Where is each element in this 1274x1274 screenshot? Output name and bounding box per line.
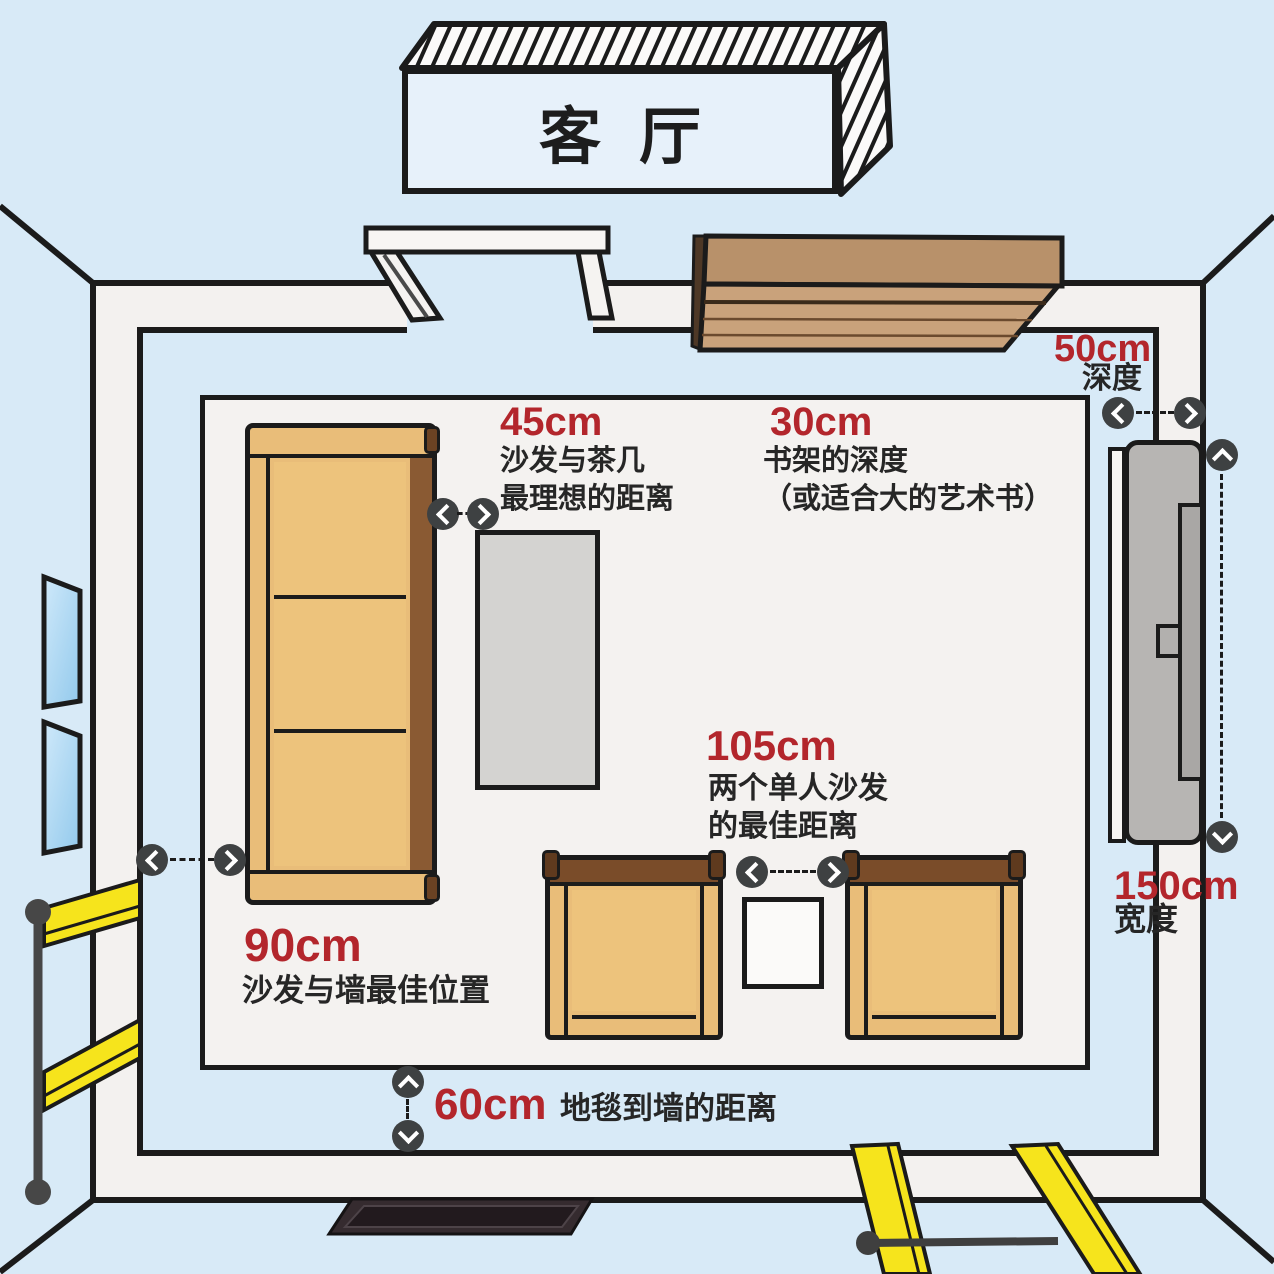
dim-30-desc-line1: 书架的深度 [763, 442, 1053, 480]
dim-45-value: 45cm [500, 400, 602, 445]
chevron-up [1211, 447, 1232, 468]
bookshelf-shelf-line [703, 319, 1032, 320]
perspective-line-bottom-right [1203, 1200, 1274, 1262]
dim-30-desc: 书架的深度 （或适合大的艺术书） [763, 442, 1053, 518]
doormat [329, 1199, 592, 1234]
sofa-cushion-divider [274, 729, 406, 733]
chevron-right [216, 849, 237, 870]
chevron-left [144, 849, 165, 870]
chair-backrest [550, 860, 718, 886]
chair-armrest-left [550, 886, 568, 1035]
dimension-dash [170, 858, 214, 861]
ladder-left [25, 880, 140, 1205]
dim-105-desc-line1: 两个单人沙发 [708, 770, 888, 808]
sofa-backrest [250, 458, 270, 870]
chair-front-edge [872, 1015, 996, 1035]
dim-50-desc: 深度 [1082, 360, 1142, 398]
banner: 客厅 [402, 68, 838, 194]
arrow-up-icon [392, 1066, 424, 1098]
dim-150-desc-line1: 宽度 [1114, 900, 1178, 938]
dim-30-desc-line2: （或适合大的艺术书） [763, 480, 1053, 518]
arrow-down-icon [392, 1120, 424, 1152]
dim-60-value: 60cm [434, 1080, 547, 1130]
chair-armrest-right [1000, 886, 1018, 1035]
chair-backrest [850, 860, 1018, 886]
chevron-right [819, 861, 840, 882]
dim-105-desc-line2: 的最佳距离 [708, 808, 888, 846]
chevron-down [397, 1122, 418, 1143]
dimension-dash [406, 1099, 409, 1119]
dimension-dash [1136, 411, 1174, 414]
perspective-line-top-left [0, 206, 93, 283]
arrow-left-icon [427, 498, 459, 530]
chevron-left [1110, 402, 1131, 423]
sofa [245, 423, 437, 905]
perspective-line-bottom-left [0, 1200, 93, 1272]
dim-90-desc-line1: 沙发与墙最佳位置 [242, 972, 490, 1010]
living-room-diagram: 客厅 [0, 0, 1274, 1274]
armchair-right [845, 855, 1023, 1040]
dimension-dash [1220, 474, 1223, 818]
sofa-armrest-top [250, 428, 432, 458]
dim-105-desc: 两个单人沙发 的最佳距离 [708, 770, 888, 846]
arrow-right-icon [817, 856, 849, 888]
window-lower [44, 722, 80, 853]
chair-seat [872, 890, 996, 1011]
arrow-left-icon [136, 844, 168, 876]
arrow-down-icon [1206, 821, 1238, 853]
chevron-left [744, 861, 765, 882]
sofa-arm-post [424, 426, 440, 454]
dim-45-desc-line2: 最理想的距离 [500, 480, 674, 518]
sofa-cushion-divider [274, 595, 406, 599]
arrow-up-icon [1206, 439, 1238, 471]
bookshelf-front [700, 284, 1058, 350]
dim-45-desc: 沙发与茶几 最理想的距离 [500, 442, 674, 518]
chevron-right [469, 503, 490, 524]
chevron-up [397, 1074, 418, 1095]
sofa-armrest-bottom [250, 870, 432, 900]
ladder-rail-cap [25, 899, 51, 925]
ladder-bottom-right [852, 1144, 1140, 1274]
sofa-arm-post [424, 874, 440, 902]
bookshelf-shelf-line [704, 302, 1046, 303]
arrow-right-icon [467, 498, 499, 530]
chair-back-post [1008, 850, 1026, 880]
dim-50-desc-line1: 深度 [1082, 360, 1142, 398]
dimension-dash [770, 870, 816, 873]
perspective-line-top-right [1203, 216, 1274, 283]
arrow-left-icon [1102, 397, 1134, 429]
arrow-right-icon [1174, 397, 1206, 429]
banner-title: 客厅 [501, 86, 739, 176]
chevron-down [1211, 823, 1232, 844]
ladder-rail [870, 1241, 1058, 1243]
coffee-table [475, 530, 600, 790]
doormat-center [345, 1206, 578, 1227]
chevron-left [435, 503, 456, 524]
chair-armrest-right [700, 886, 718, 1035]
dim-30-value: 30cm [770, 400, 872, 445]
chevron-right [1176, 402, 1197, 423]
tv-screen [1178, 503, 1204, 781]
side-table [742, 897, 824, 989]
dim-60-desc-line1: 地毯到墙的距离 [560, 1090, 777, 1128]
chair-seat [572, 890, 696, 1011]
bookshelf-top [704, 236, 1062, 286]
chair-back-post [708, 850, 726, 880]
ladder-rung [1012, 1144, 1140, 1274]
window-upper [44, 577, 80, 707]
door-lintel [366, 228, 608, 252]
chair-armrest-left [850, 886, 868, 1035]
arrow-right-icon [214, 844, 246, 876]
dim-90-value: 90cm [244, 918, 362, 972]
dim-60-desc: 地毯到墙的距离 [560, 1090, 777, 1128]
ladder-rail-cap [856, 1231, 880, 1255]
ladder-rail-cap [25, 1179, 51, 1205]
sofa-seat-cushions [274, 462, 406, 866]
dim-105-value: 105cm [706, 722, 837, 770]
dim-45-desc-line1: 沙发与茶几 [500, 442, 674, 480]
bookshelf [692, 236, 1062, 350]
armchair-left [545, 855, 723, 1040]
dim-150-desc: 宽度 [1114, 900, 1178, 938]
arrow-left-icon [736, 856, 768, 888]
dim-90-desc: 沙发与墙最佳位置 [242, 972, 490, 1010]
bookshelf-shelf-line [702, 335, 1018, 336]
chair-back-post [542, 850, 560, 880]
chair-front-edge [572, 1015, 696, 1035]
banner-top-face [402, 24, 884, 68]
